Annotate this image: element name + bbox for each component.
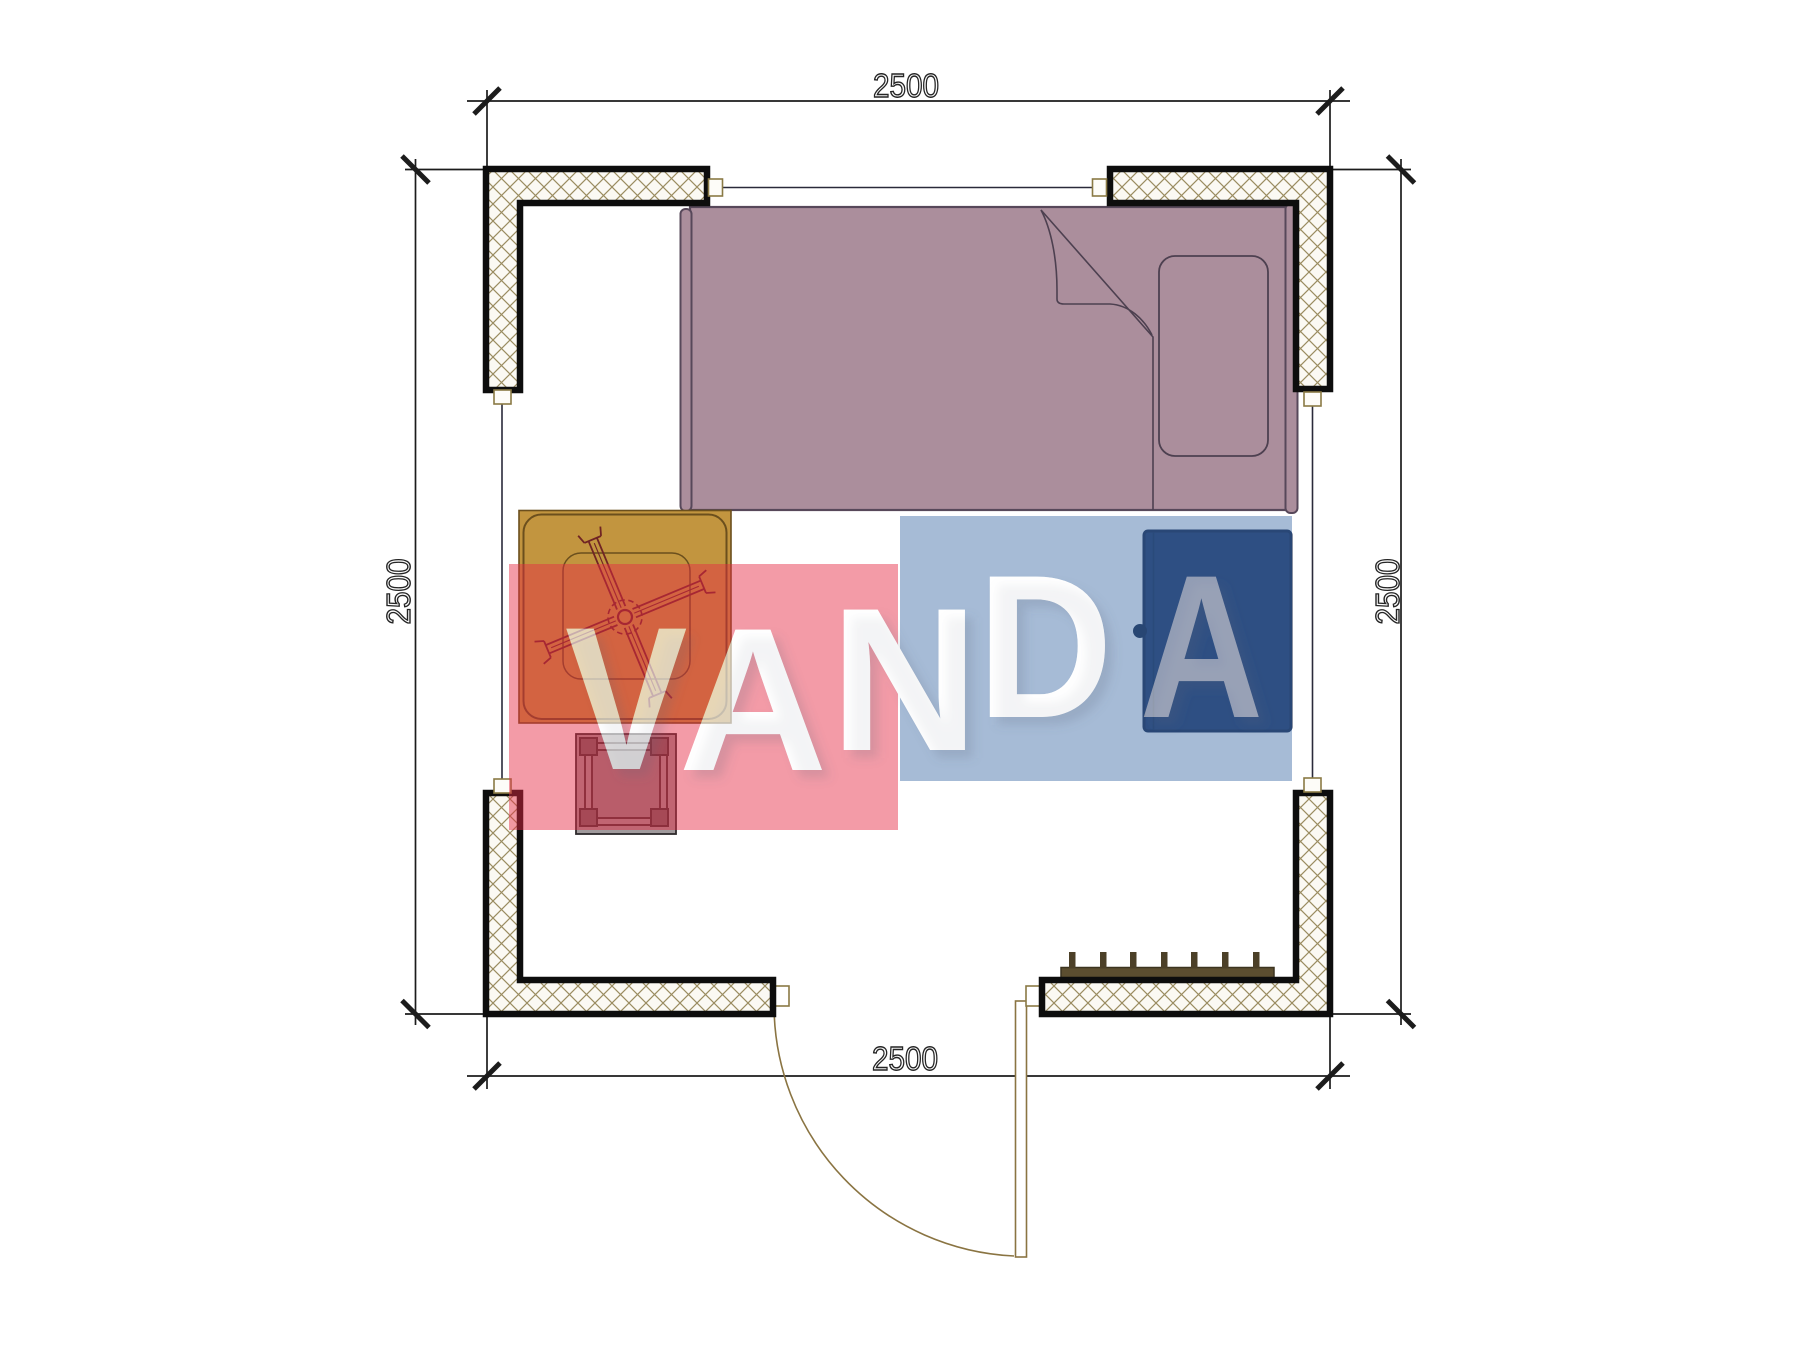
svg-text:A: A [679, 586, 828, 814]
svg-text:V: V [565, 585, 687, 813]
svg-text:A: A [1140, 532, 1264, 760]
svg-text:2500: 2500 [1370, 558, 1407, 624]
svg-text:N: N [830, 566, 979, 794]
svg-text:2500: 2500 [873, 68, 939, 105]
svg-text:D: D [977, 533, 1113, 761]
svg-text:2500: 2500 [872, 1041, 938, 1078]
svg-text:2500: 2500 [381, 558, 418, 624]
